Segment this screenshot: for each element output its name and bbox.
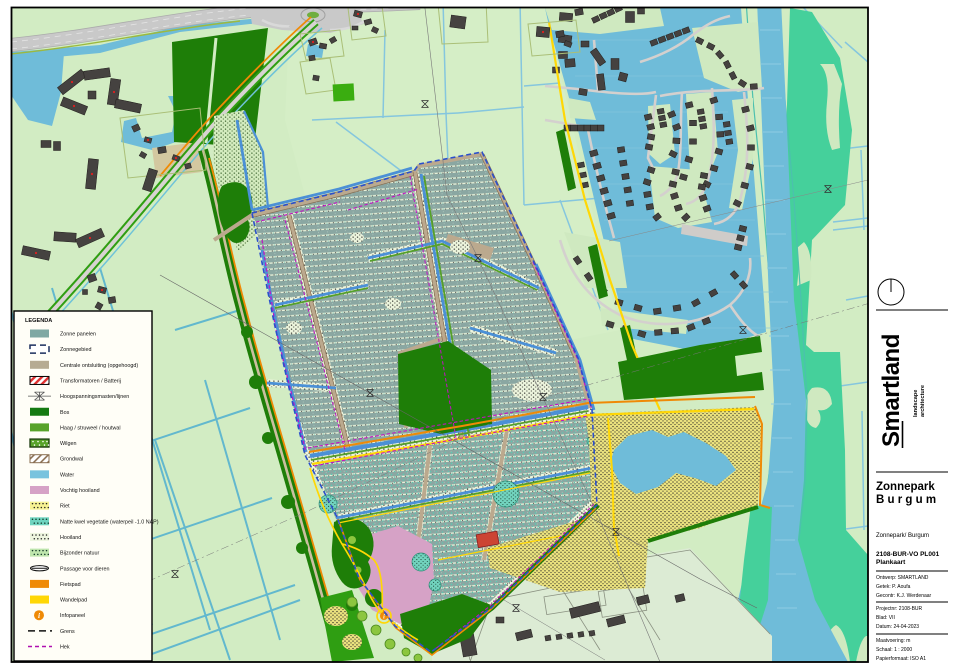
svg-text:Transformatoren / Batterij: Transformatoren / Batterij — [60, 378, 121, 384]
svg-text:Blad: VII: Blad: VII — [876, 615, 895, 621]
svg-text:Passage voor dieren: Passage voor dieren — [60, 566, 109, 572]
svg-text:Centrale ontsluiting (opgehoog: Centrale ontsluiting (opgehoogd) — [60, 363, 138, 369]
svg-text:Grens: Grens — [60, 629, 75, 635]
svg-text:Zonne panelen: Zonne panelen — [60, 332, 96, 338]
svg-text:Hoogspanningsmasten/lijnen: Hoogspanningsmasten/lijnen — [60, 394, 129, 400]
svg-text:Papierformaat: ISO A1: Papierformaat: ISO A1 — [876, 656, 926, 662]
svg-text:Projectnr: 2108-BUR: Projectnr: 2108-BUR — [876, 606, 923, 612]
svg-text:Riet: Riet — [60, 504, 70, 510]
svg-text:Maatvoering: m: Maatvoering: m — [876, 638, 910, 644]
svg-text:LEGENDA: LEGENDA — [25, 318, 52, 324]
svg-text:Zonnepark/ Burgum: Zonnepark/ Burgum — [876, 533, 929, 539]
svg-text:Ontwerp: SMARTLAND: Ontwerp: SMARTLAND — [876, 575, 929, 581]
svg-text:Zonnepark: Zonnepark — [876, 481, 935, 493]
svg-text:Wilgen: Wilgen — [60, 441, 76, 447]
svg-text:Zonnegebied: Zonnegebied — [60, 347, 91, 353]
svg-text:Haag / struweel / houtwal: Haag / struweel / houtwal — [60, 425, 121, 431]
svg-text:Water: Water — [60, 472, 74, 478]
svg-text:Burgum: Burgum — [876, 494, 939, 506]
svg-text:Schaal: 1 : 2000: Schaal: 1 : 2000 — [876, 647, 912, 653]
svg-text:Bos: Bos — [60, 410, 70, 416]
svg-text:Vochtig hooiland: Vochtig hooiland — [60, 488, 100, 494]
svg-text:Wandelpad: Wandelpad — [60, 598, 87, 604]
svg-text:Infopaneel: Infopaneel — [60, 613, 85, 619]
svg-text:Hooiland: Hooiland — [60, 535, 81, 541]
svg-text:Datum: 24-04-2023: Datum: 24-04-2023 — [876, 624, 919, 630]
svg-text:Natte kwel vegetatie (waterpei: Natte kwel vegetatie (waterpeil -1.0 NAP… — [60, 519, 159, 525]
svg-text:Plankaart: Plankaart — [876, 559, 906, 566]
svg-text:landscape: landscape — [913, 390, 919, 417]
svg-text:Hek: Hek — [60, 645, 70, 651]
svg-text:Bijzonder natuur: Bijzonder natuur — [60, 551, 99, 557]
svg-text:architecture: architecture — [920, 385, 926, 417]
svg-text:2108-BUR-VO PL001: 2108-BUR-VO PL001 — [876, 551, 940, 558]
svg-text:Grondwal: Grondwal — [60, 457, 83, 463]
svg-text:Getek: P. Aoufa: Getek: P. Aoufa — [876, 584, 911, 590]
svg-text:Smartland: Smartland — [878, 334, 905, 447]
svg-text:Fietspad: Fietspad — [60, 582, 81, 588]
svg-text:Gecontr: K.J. Werdenaar: Gecontr: K.J. Werdenaar — [876, 593, 932, 599]
